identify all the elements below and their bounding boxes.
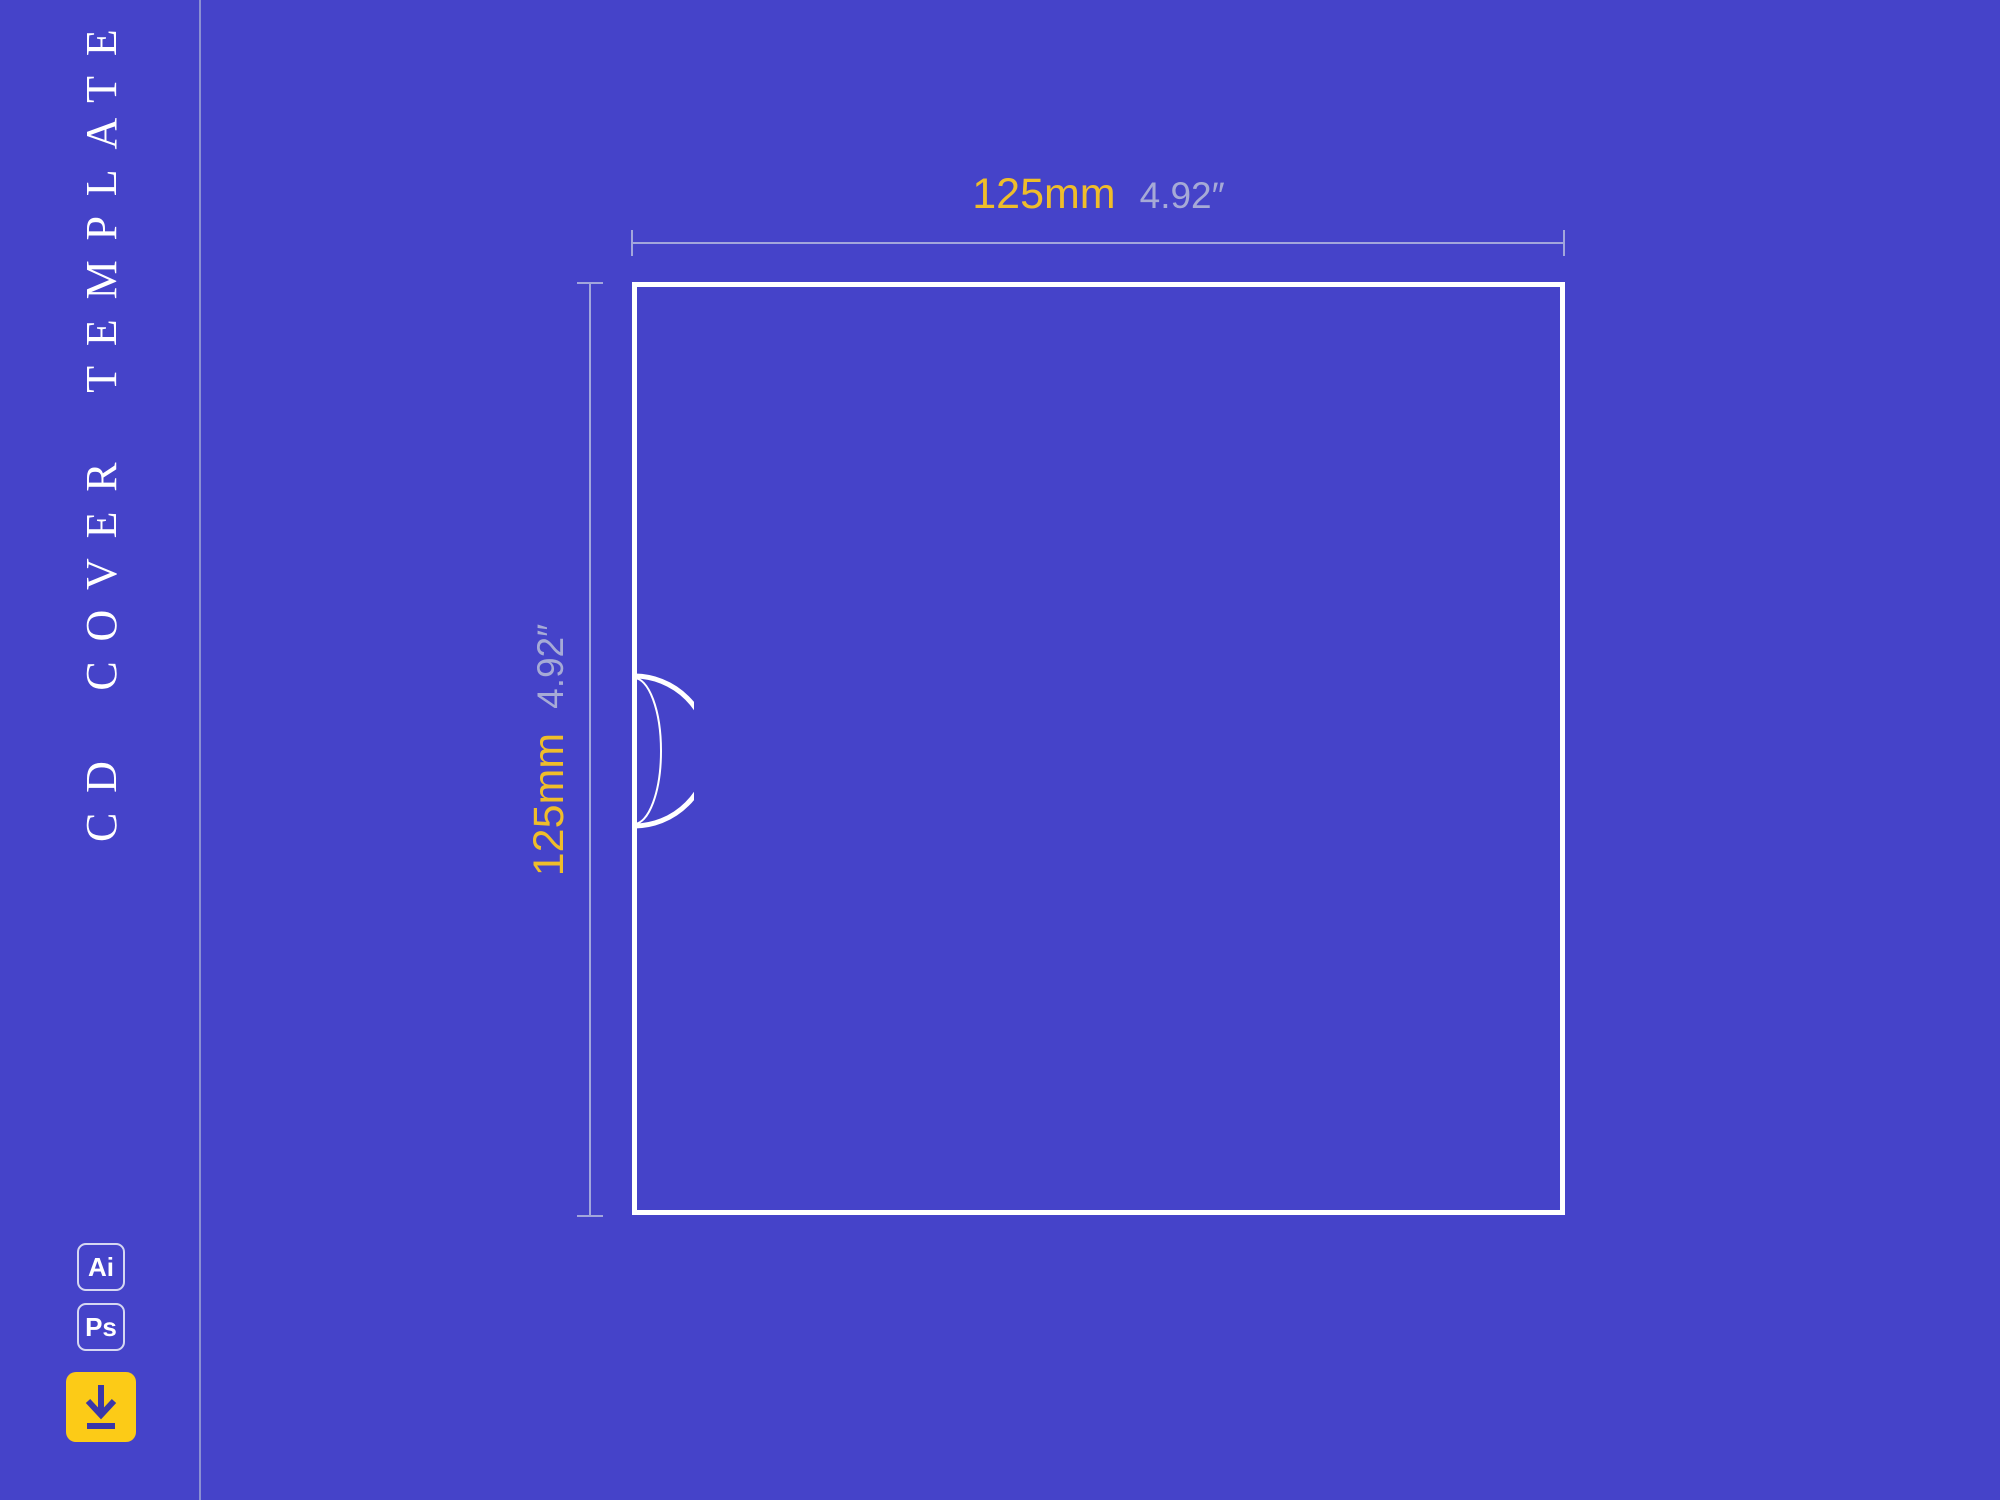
width-dimension-tick-right [1563,230,1565,256]
page: { "sidebar": { "title": "CD COVER TEMPLA… [0,0,2000,1500]
cd-cover-outline [632,282,1565,1215]
width-dimension-tick-left [631,230,633,256]
width-dimension-line [632,242,1565,244]
height-dimension-tick-bottom [577,1215,603,1217]
download-button[interactable] [66,1372,136,1442]
height-dimension-mm-value: 125mm [525,733,574,876]
height-dimension-tick-top [577,282,603,284]
photoshop-badge-label: Ps [85,1312,117,1343]
download-arrow-icon [66,1372,136,1442]
page-title: CD COVER TEMPLATE [77,62,127,842]
illustrator-format-badge: Ai [77,1243,125,1291]
width-dimension-label: 125mm 4.92″ [632,170,1565,224]
height-dimension-inch-value: 4.92″ [530,624,572,709]
photoshop-format-badge: Ps [77,1303,125,1351]
height-dimension-label: 125mm 4.92″ [525,540,579,960]
height-dimension-line [589,283,591,1216]
thumb-notch [574,666,694,836]
sidebar-divider-line [199,0,201,1500]
illustrator-badge-label: Ai [88,1252,114,1283]
width-dimension-inch-value: 4.92″ [1140,175,1225,217]
width-dimension-mm-value: 125mm [972,170,1115,219]
